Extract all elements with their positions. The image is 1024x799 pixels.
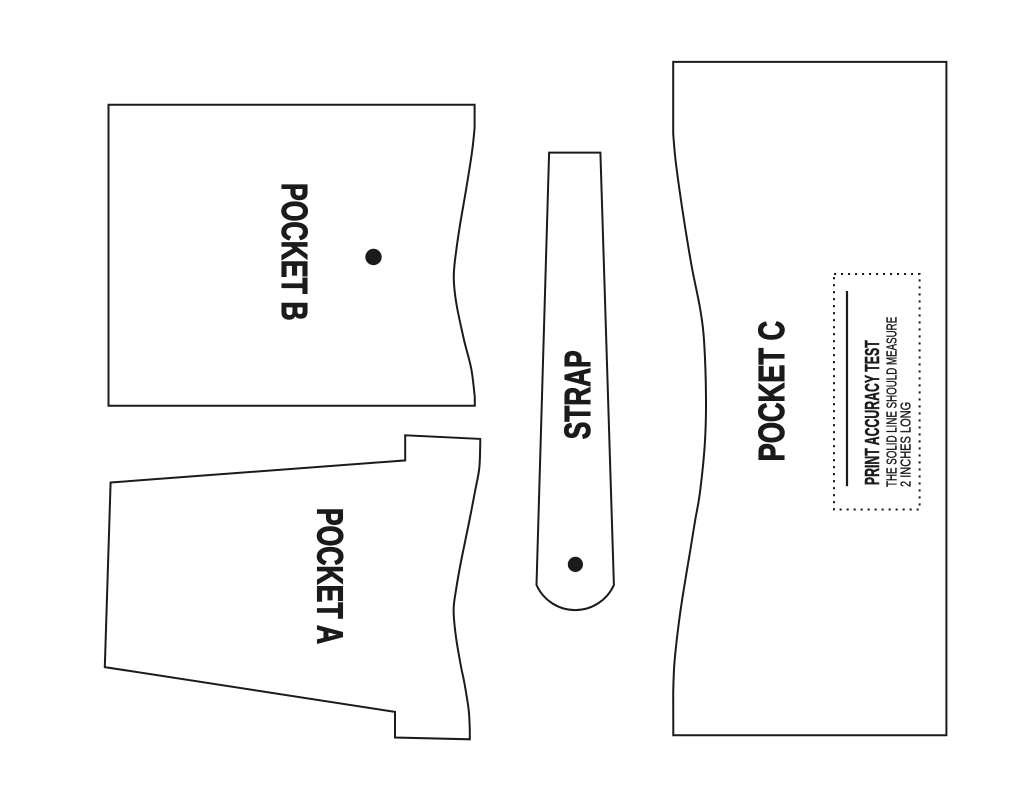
svg-text:POCKET A: POCKET A xyxy=(310,508,351,644)
svg-text:PRINT ACCURACY TEST: PRINT ACCURACY TEST xyxy=(862,340,884,485)
svg-text:POCKET B: POCKET B xyxy=(274,183,315,320)
svg-text:2 INCHES LONG: 2 INCHES LONG xyxy=(899,402,915,487)
svg-text:POCKET C: POCKET C xyxy=(751,321,792,462)
svg-text:STRAP: STRAP xyxy=(557,350,598,439)
